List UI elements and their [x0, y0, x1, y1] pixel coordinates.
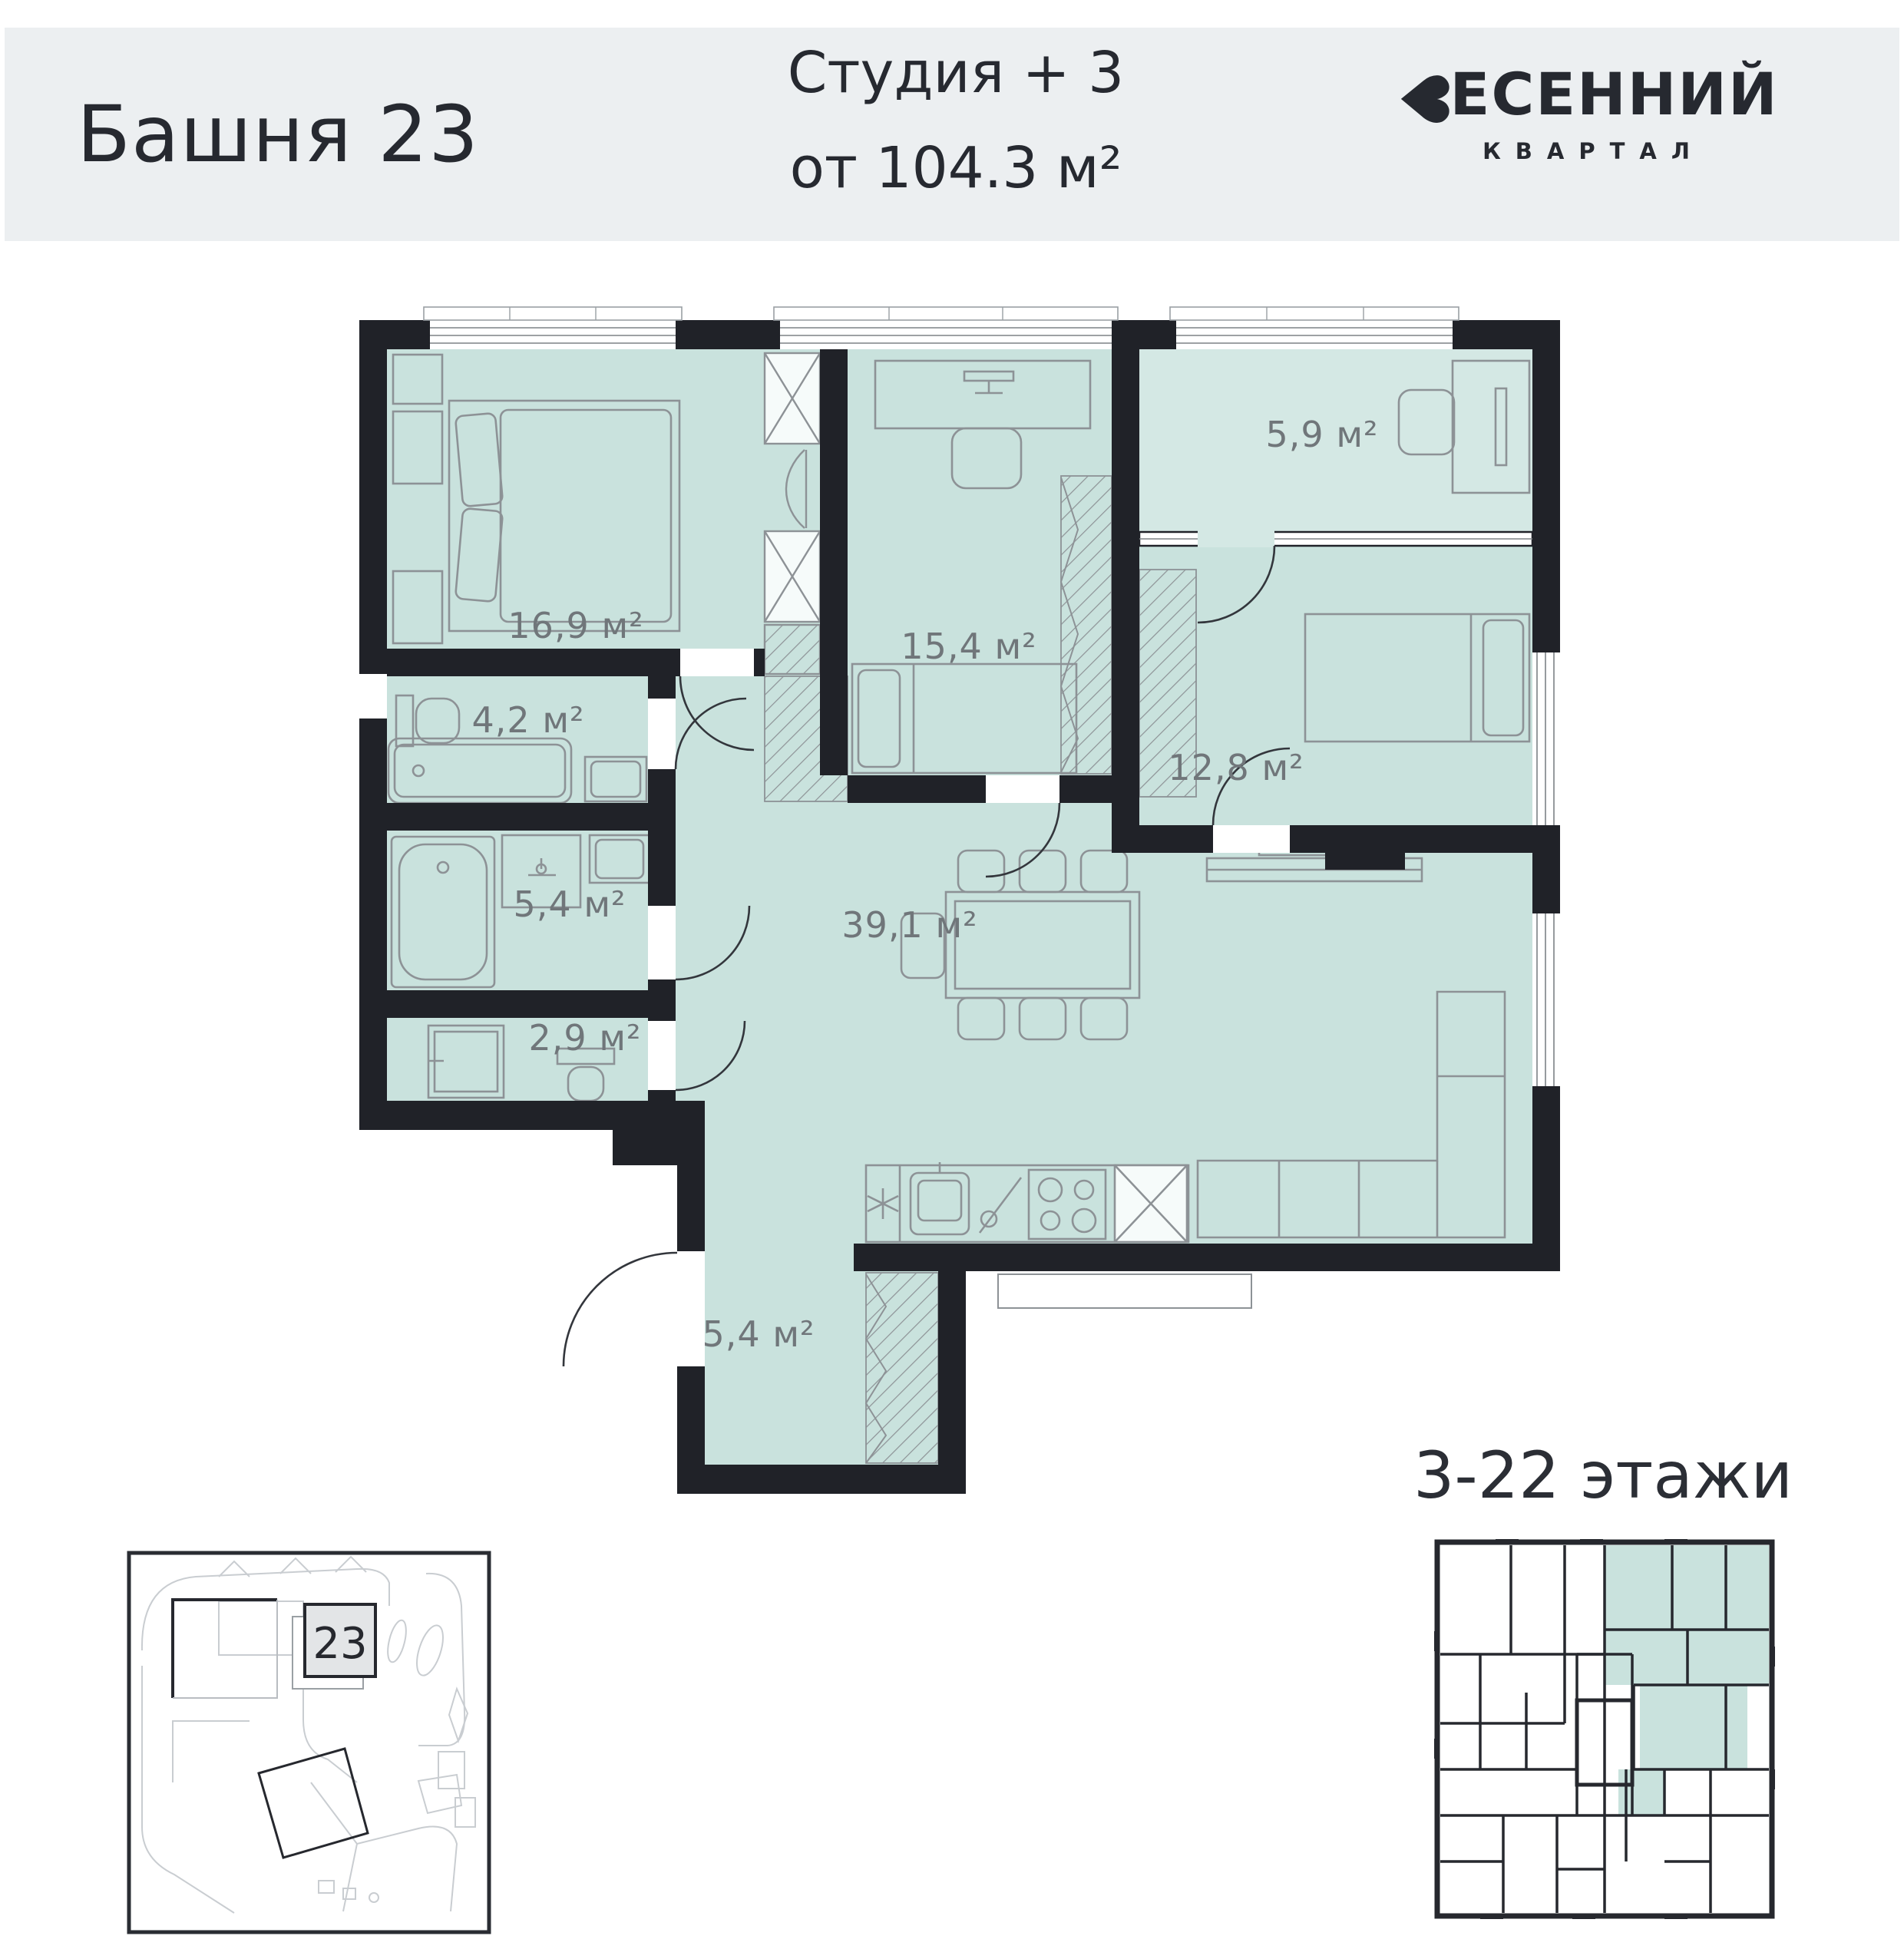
room-label-bedroom-2: 15,4 м²: [901, 626, 1036, 667]
building-23-number: 23: [312, 1619, 367, 1669]
room-label-bathroom-1: 4,2 м²: [472, 699, 585, 741]
room-label-wc: 2,9 м²: [529, 1017, 642, 1059]
unit-type: Студия + 3: [788, 45, 1124, 101]
building-23-marker: 23: [293, 1604, 375, 1689]
unit-area-from: от 104.3 м²: [788, 135, 1124, 201]
loggia-glazing: [1139, 530, 1532, 547]
tower-title: Башня 23: [77, 28, 479, 241]
unit-summary: Студия + 3 от 104.3 м²: [788, 45, 1124, 201]
site-plan: 23: [127, 1551, 491, 1934]
brand-name: ЕСЕННИЙ: [1450, 65, 1779, 124]
room-label-bathroom-2: 5,4 м²: [514, 884, 626, 925]
room-label-living-kitchen: 39,1 м²: [841, 904, 977, 946]
room-label-bedroom-1: 16,9 м²: [507, 605, 643, 646]
brand-logo: ♥ ЕСЕННИЙ КВАРТАЛ: [1393, 61, 1778, 164]
room-label-hallway: 5,4 м²: [702, 1313, 815, 1355]
floors-range-label: 3-22 этажи: [1413, 1438, 1793, 1513]
heart-icon: ♥: [1390, 69, 1456, 128]
room-label-bedroom-3: 12,8 м²: [1168, 747, 1304, 788]
key-floor-plate: [1434, 1539, 1775, 1919]
brand-subtitle: КВАРТАЛ: [1393, 138, 1778, 164]
room-label-loggia: 5,9 м²: [1266, 414, 1379, 455]
